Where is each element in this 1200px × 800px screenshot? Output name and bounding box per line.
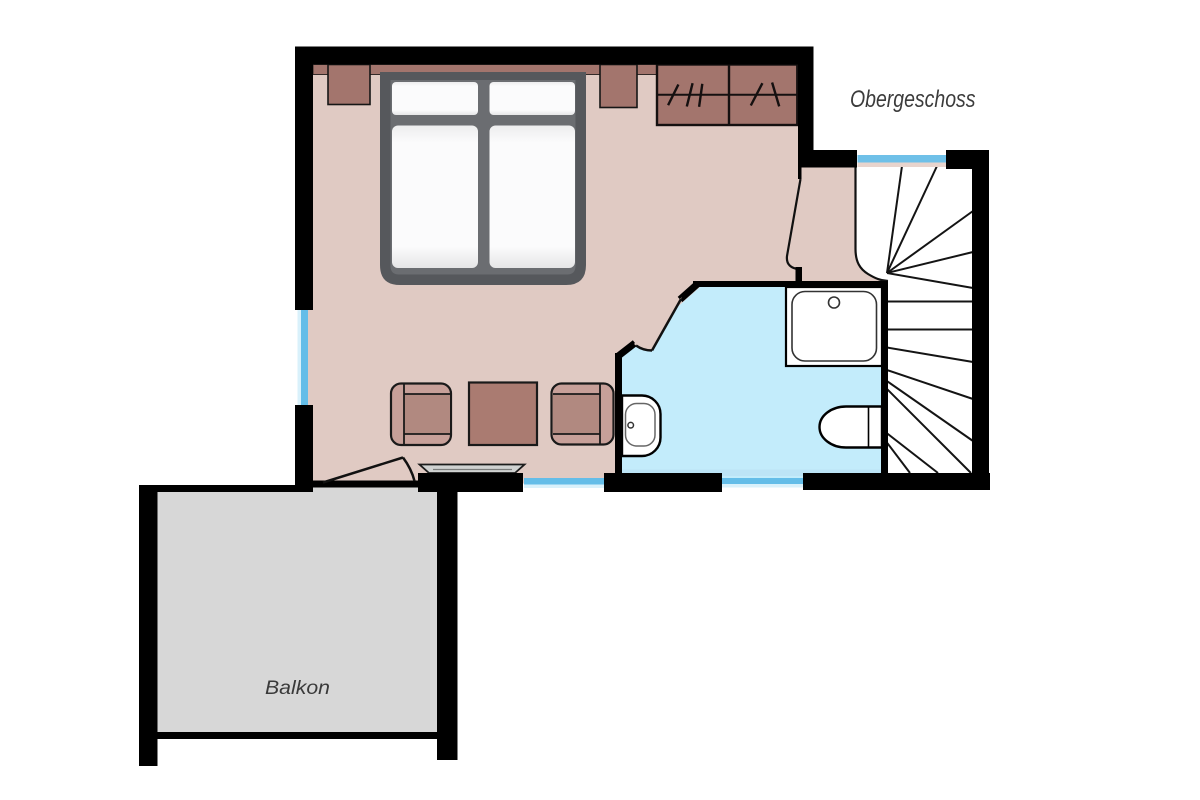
svg-text:Obergeschoss: Obergeschoss: [850, 86, 976, 113]
svg-text:Balkon: Balkon: [265, 678, 330, 699]
